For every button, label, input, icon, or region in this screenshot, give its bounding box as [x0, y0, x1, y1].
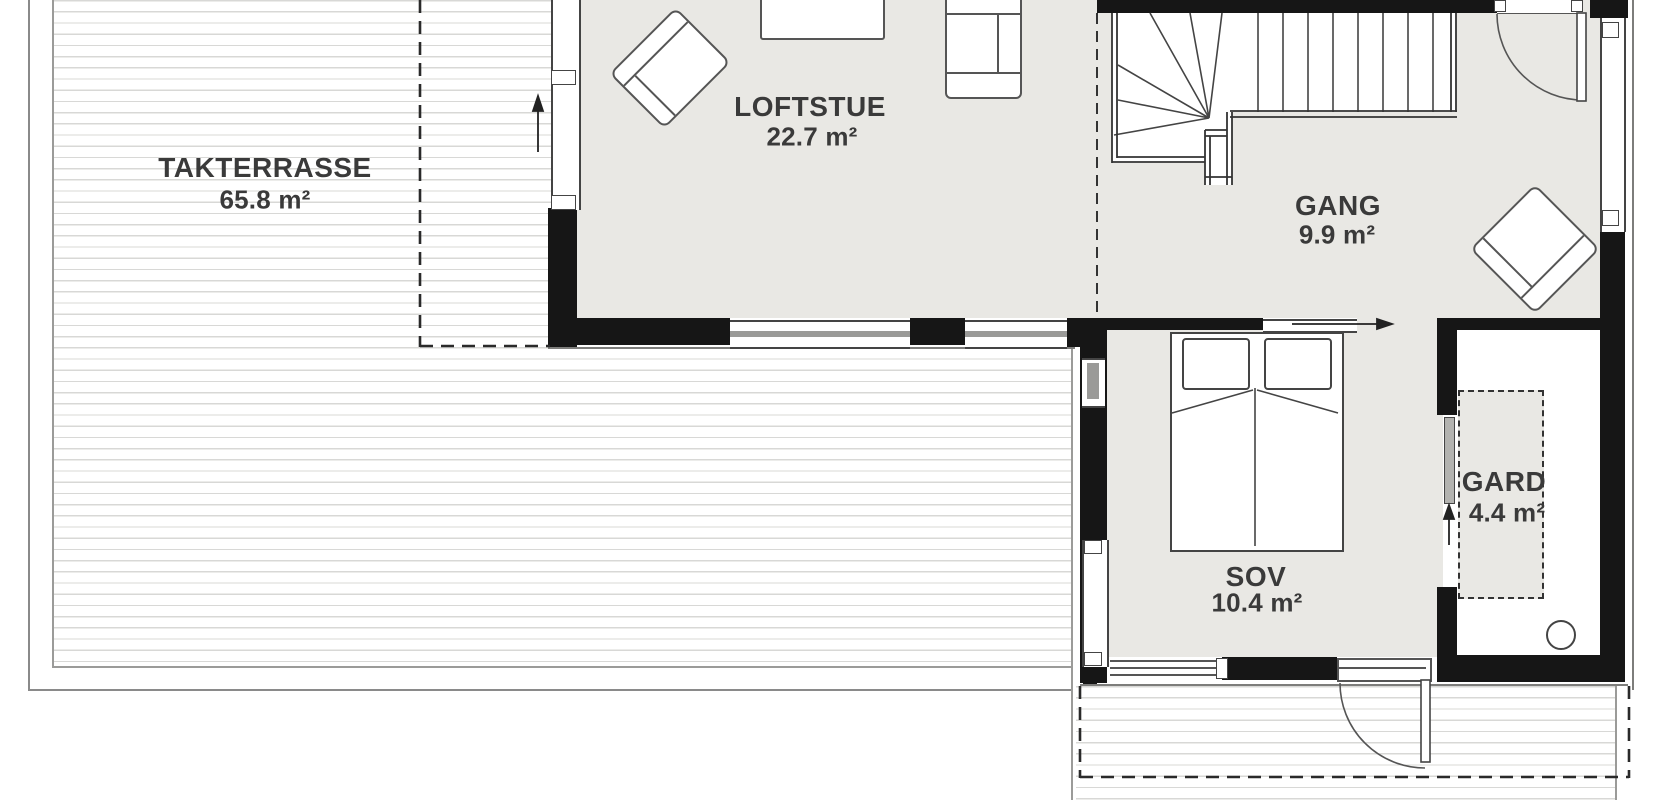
slide-arrow-gard: [1444, 505, 1454, 545]
slide-arrow-sov: [1292, 319, 1392, 329]
plan-linework: [0, 0, 1670, 800]
bed-duvet-lines: [1172, 388, 1338, 546]
slide-arrow-west: [533, 96, 543, 152]
floor-plan: TAKTERRASSE 65.8 m² LOFTSTUE 22.7 m² GAN…: [0, 0, 1670, 800]
door-sov-south: [1340, 680, 1430, 768]
lower-terrace-dashed-line: [1080, 686, 1629, 778]
door-gang-north: [1497, 13, 1586, 101]
overhang-dashed-line: [420, 0, 550, 347]
